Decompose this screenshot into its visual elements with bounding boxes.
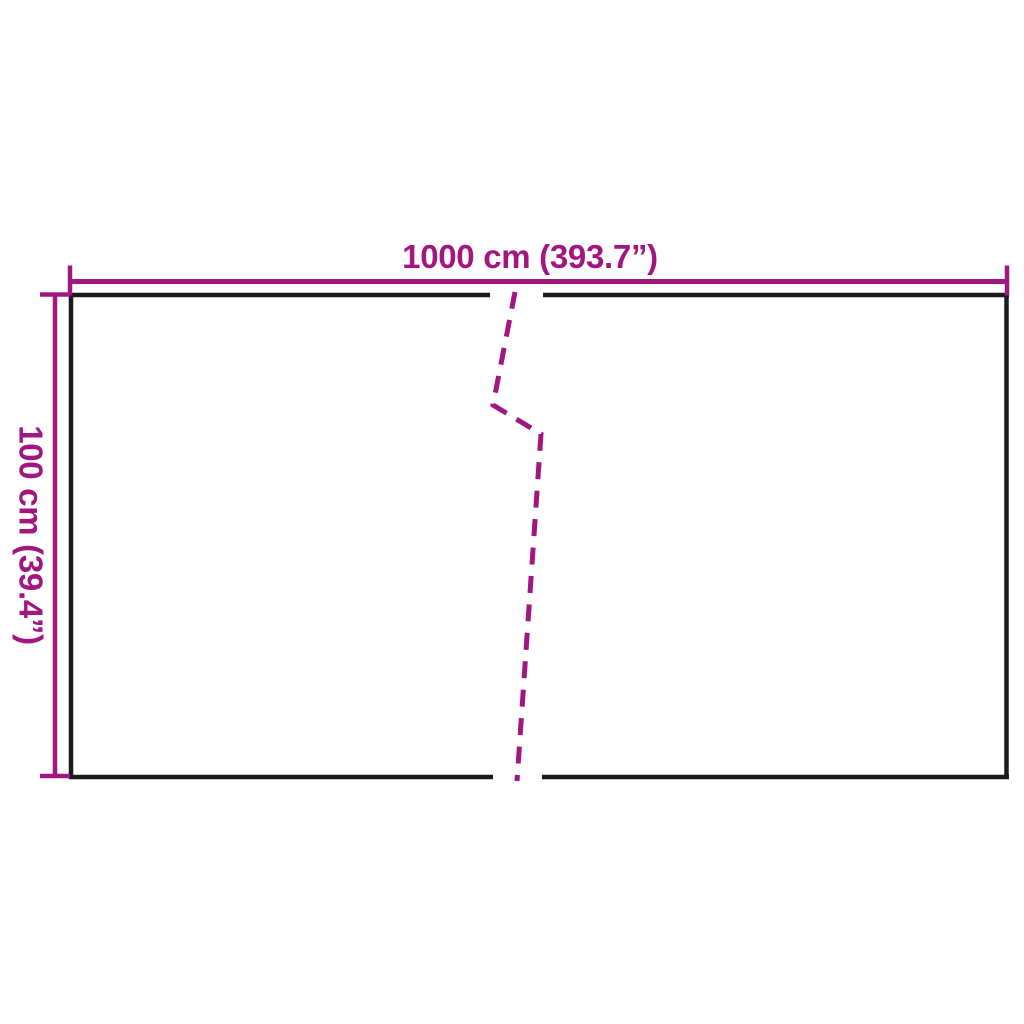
width-dimension-line <box>68 266 1009 296</box>
dimension-diagram: 1000 cm (393.7”) 100 cm (39.4”) <box>0 0 1024 1024</box>
height-dimension-line <box>40 294 70 778</box>
diagram-canvas <box>0 0 1024 1024</box>
panel-outline <box>69 293 1009 779</box>
break-line <box>493 292 541 781</box>
